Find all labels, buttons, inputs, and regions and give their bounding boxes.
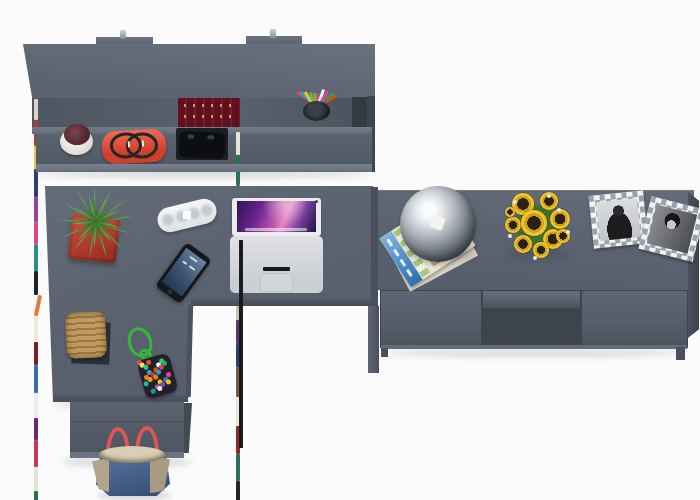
tote-side-panel bbox=[92, 458, 109, 492]
tote-group bbox=[0, 0, 700, 500]
tote-opening bbox=[99, 446, 165, 463]
scene bbox=[0, 0, 700, 500]
